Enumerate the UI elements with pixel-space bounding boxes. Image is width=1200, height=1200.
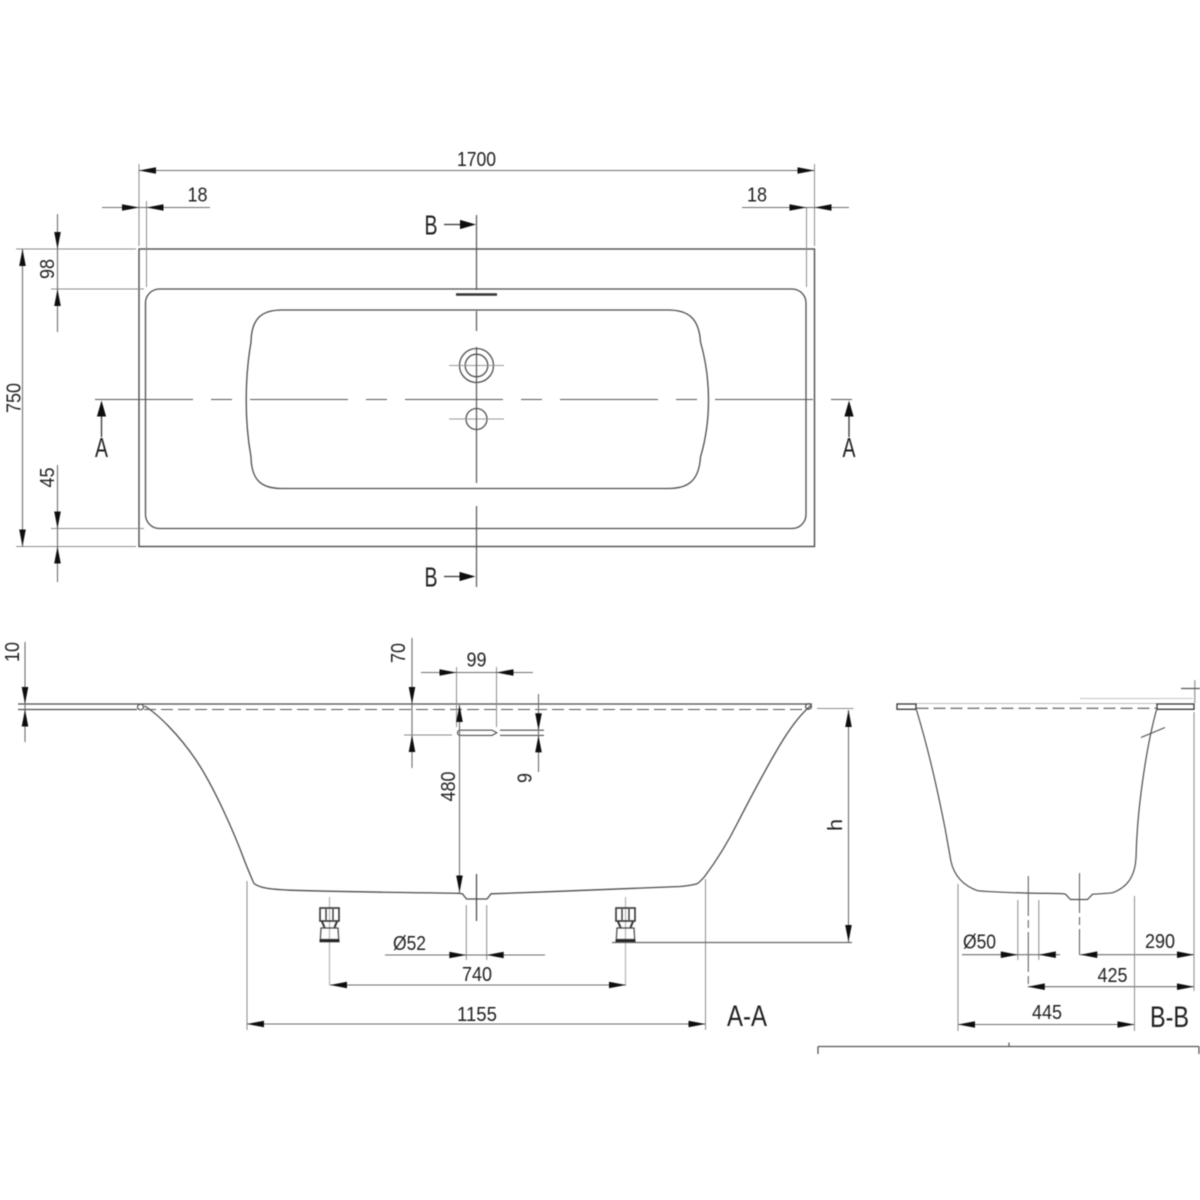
svg-text:750: 750	[4, 383, 26, 413]
svg-text:A: A	[843, 432, 856, 463]
svg-text:425: 425	[1098, 965, 1128, 987]
svg-text:740: 740	[462, 964, 492, 986]
svg-text:1155: 1155	[457, 1004, 497, 1026]
svg-text:B: B	[425, 210, 438, 241]
svg-text:Ø50: Ø50	[963, 932, 996, 954]
svg-text:10: 10	[2, 642, 24, 662]
svg-text:18: 18	[747, 185, 767, 207]
svg-text:B: B	[425, 562, 438, 593]
svg-text:1700: 1700	[457, 149, 496, 171]
svg-text:445: 445	[1032, 1002, 1062, 1024]
svg-text:99: 99	[467, 650, 487, 672]
svg-text:45: 45	[37, 468, 59, 488]
svg-text:9: 9	[515, 773, 537, 783]
svg-text:h: h	[825, 819, 847, 831]
svg-text:B-B: B-B	[1150, 1001, 1189, 1034]
svg-text:290: 290	[1145, 931, 1175, 953]
svg-text:480: 480	[438, 772, 460, 802]
svg-text:A: A	[95, 432, 108, 463]
svg-text:18: 18	[188, 185, 208, 207]
svg-text:A-A: A-A	[727, 1000, 767, 1033]
svg-text:Ø52: Ø52	[393, 933, 426, 955]
svg-text:70: 70	[388, 643, 410, 663]
svg-text:98: 98	[37, 259, 59, 279]
